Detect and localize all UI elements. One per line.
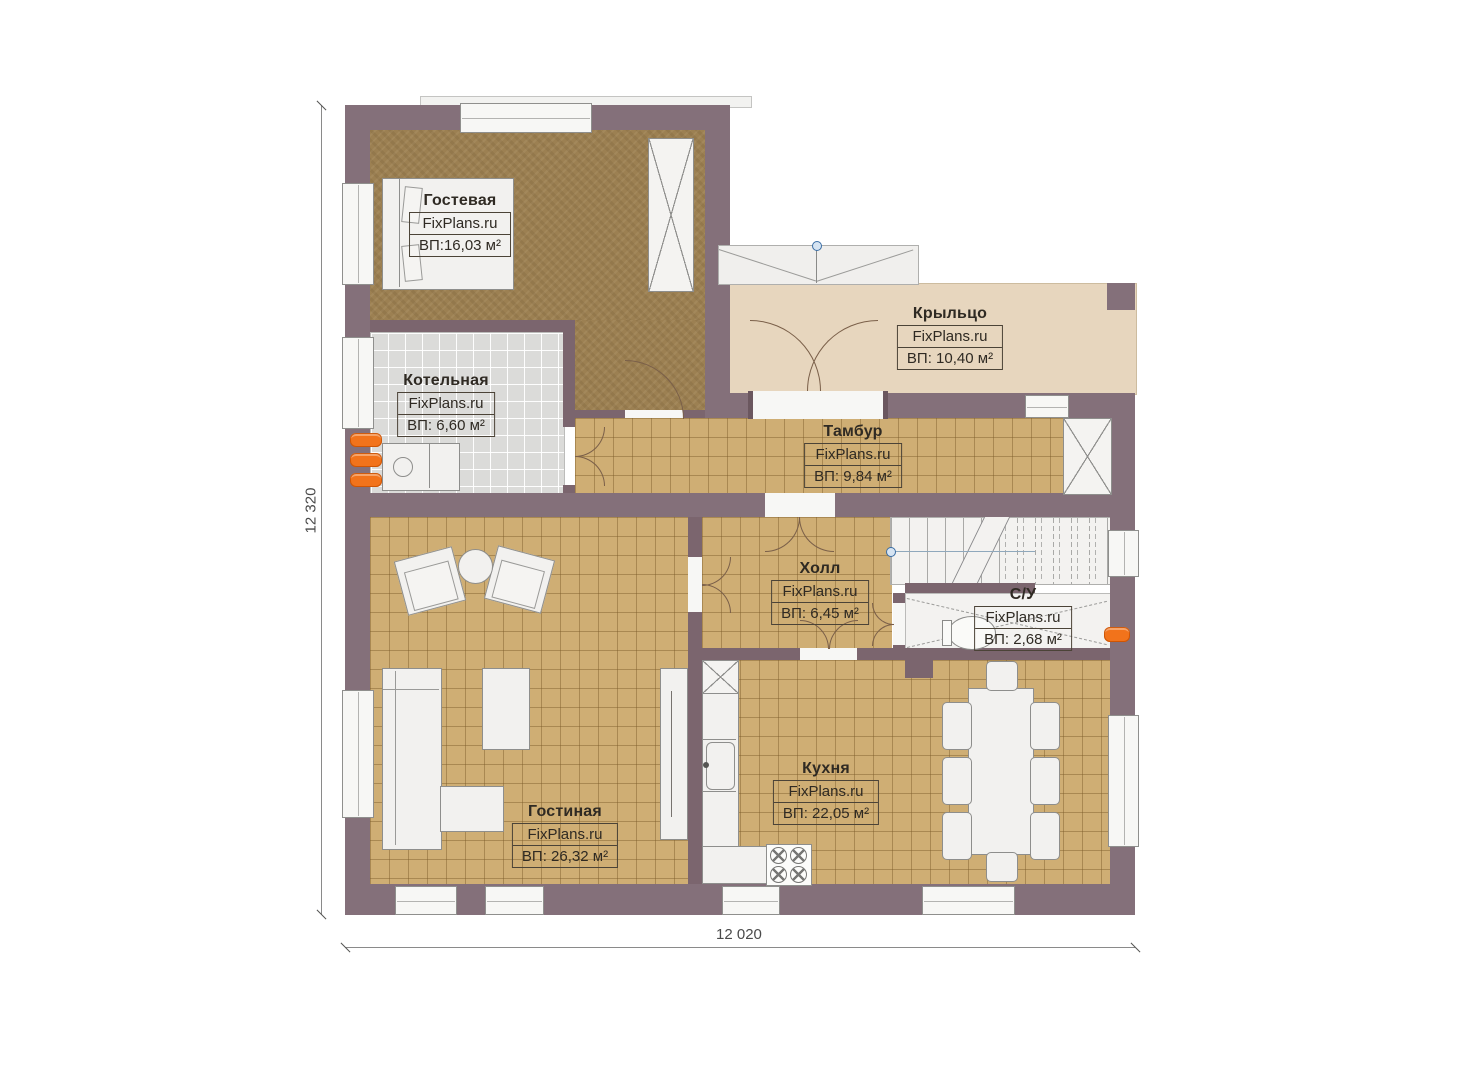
side-table: [458, 549, 493, 584]
radiator: [350, 433, 382, 447]
entry-door-opening: [748, 391, 888, 419]
area-text: ВП: 22,05 м²: [774, 802, 878, 824]
coffee-table: [482, 668, 530, 750]
wall-living-kitchen: [688, 660, 702, 884]
dining-chair: [942, 702, 972, 750]
area-text: ВП: 10,40 м²: [898, 347, 1002, 369]
stove-burner-icon: [770, 866, 787, 883]
door-opening-hall-living: [688, 557, 702, 612]
wardrobe: [648, 138, 694, 292]
wall-guest-boiler: [370, 320, 575, 332]
room-info-box: FixPlans.ru ВП: 6,45 м²: [771, 580, 869, 625]
window-bottom-kitchen-2: [922, 886, 1015, 915]
counter-divider: [703, 791, 736, 792]
room-name: Тамбур: [804, 423, 902, 441]
room-name: Кухня: [773, 760, 879, 778]
wall-hall-living-upper: [688, 517, 702, 557]
stove-burner-icon: [770, 847, 787, 864]
room-name: Котельная: [397, 372, 495, 390]
room-info-box: FixPlans.ru ВП: 26,32 м²: [512, 823, 618, 868]
dimension-line-vertical: [321, 105, 322, 915]
room-label-porch: Крыльцо FixPlans.ru ВП: 10,40 м²: [897, 305, 1003, 370]
wall-vestibule-bottom-right: [835, 493, 1110, 517]
counter-divider: [703, 739, 736, 740]
window-bottom-living-2: [485, 886, 544, 915]
dining-chair: [1030, 812, 1060, 860]
wall-hall-bottom-left: [688, 648, 800, 660]
area-text: ВП:16,03 м²: [410, 234, 510, 256]
wall-kitchen-pillar: [905, 660, 933, 678]
dining-chair: [942, 812, 972, 860]
sofa-chaise: [440, 786, 504, 832]
staircase-upper-dashed-treads: [1005, 518, 1105, 582]
window-bottom-kitchen-1: [722, 886, 780, 915]
wall-bathroom-left-upper: [893, 593, 905, 603]
room-name: Крыльцо: [897, 305, 1003, 323]
brand-text: FixPlans.ru: [398, 393, 494, 414]
door-opening-vestibule-hall: [765, 493, 835, 517]
brand-text: FixPlans.ru: [410, 213, 510, 234]
wall-guest-corridor-threshold-left: [575, 410, 625, 418]
area-text: ВП: 2,68 м²: [975, 628, 1071, 650]
window-left-living: [342, 690, 374, 818]
window-top: [460, 103, 592, 133]
vestibule-closet: [1063, 418, 1112, 495]
room-name: Холл: [771, 560, 869, 578]
window-right-kitchen: [1108, 715, 1139, 847]
brand-text: FixPlans.ru: [513, 824, 617, 845]
room-label-vestibule: Тамбур FixPlans.ru ВП: 9,84 м²: [804, 423, 902, 488]
area-text: ВП: 6,45 м²: [772, 602, 868, 624]
dimension-label-bottom: 12 020: [716, 926, 762, 943]
sofa-armrest-line: [383, 689, 439, 690]
faucet-dot: [703, 762, 709, 768]
dining-chair: [942, 757, 972, 805]
brand-text: FixPlans.ru: [772, 581, 868, 602]
stair-direction-line: [892, 551, 1035, 552]
area-text: ВП: 26,32 м²: [513, 845, 617, 867]
sofa: [382, 668, 442, 850]
bed-headboard-line: [399, 179, 400, 287]
tv-stand: [660, 668, 688, 840]
boiler-counter-divider: [429, 444, 430, 488]
wall-vestibule-bottom-left: [345, 493, 765, 517]
wall-guest-corridor-threshold-right: [683, 410, 705, 418]
area-text: ВП: 6,60 м²: [398, 414, 494, 436]
door-opening-hall-bathroom: [893, 603, 905, 645]
toilet-tank: [942, 620, 952, 646]
dining-table: [968, 688, 1034, 855]
window-left-boiler: [342, 337, 374, 429]
room-label-living: Гостиная FixPlans.ru ВП: 26,32 м²: [512, 803, 618, 868]
armchair-seat: [404, 561, 459, 612]
room-info-box: FixPlans.ru ВП: 10,40 м²: [897, 325, 1003, 370]
room-label-boiler: Котельная FixPlans.ru ВП: 6,60 м²: [397, 372, 495, 437]
radiator: [1104, 627, 1130, 642]
room-name: С/У: [974, 586, 1072, 604]
floor-plan-canvas: Гостевая FixPlans.ru ВП:16,03 м² Котельн…: [0, 0, 1474, 1080]
brand-text: FixPlans.ru: [975, 607, 1071, 628]
radiator: [350, 453, 382, 467]
wall-boiler-right-upper: [563, 332, 575, 427]
room-info-box: FixPlans.ru ВП:16,03 м²: [409, 212, 511, 257]
stove-burner-icon: [790, 847, 807, 864]
room-info-box: FixPlans.ru ВП: 6,60 м²: [397, 392, 495, 437]
room-label-hall: Холл FixPlans.ru ВП: 6,45 м²: [771, 560, 869, 625]
dining-chair: [986, 661, 1018, 691]
dining-chair: [1030, 757, 1060, 805]
wall-hall-living-lower: [688, 612, 702, 648]
dimension-line-horizontal: [345, 947, 1135, 948]
room-label-bathroom: С/У FixPlans.ru ВП: 2,68 м²: [974, 586, 1072, 651]
dining-chair: [1030, 702, 1060, 750]
boiler-sink: [393, 457, 413, 477]
wall-boiler-right-lower: [563, 485, 575, 493]
kitchen-sink: [706, 742, 735, 790]
canopy-marker: [812, 241, 822, 251]
brand-text: FixPlans.ru: [774, 781, 878, 802]
room-info-box: FixPlans.ru ВП: 22,05 м²: [773, 780, 879, 825]
stove-burner-icon: [790, 866, 807, 883]
stove: [766, 844, 812, 886]
area-text: ВП: 9,84 м²: [805, 465, 901, 487]
room-info-box: FixPlans.ru ВП: 9,84 м²: [804, 443, 902, 488]
radiator: [350, 473, 382, 487]
dimension-label-left: 12 320: [302, 488, 319, 534]
room-label-kitchen: Кухня FixPlans.ru ВП: 22,05 м²: [773, 760, 879, 825]
window-right-stairs: [1108, 530, 1139, 577]
window-left-guest: [342, 183, 374, 285]
room-name: Гостиная: [512, 803, 618, 821]
brand-text: FixPlans.ru: [805, 444, 901, 465]
porch-pillar: [1107, 283, 1135, 310]
dining-chair: [986, 852, 1018, 882]
door-opening-hall-kitchen: [800, 648, 857, 660]
boiler-counter: [382, 443, 460, 491]
tv-panel-line: [671, 691, 672, 817]
window-porch: [1025, 395, 1069, 418]
stair-start-marker: [886, 547, 896, 557]
wall-bathroom-left-lower: [893, 645, 905, 660]
upper-cabinet-cross-icon: [702, 660, 739, 694]
armchair-seat: [491, 560, 545, 609]
room-name: Гостевая: [409, 192, 511, 210]
room-info-box: FixPlans.ru ВП: 2,68 м²: [974, 606, 1072, 651]
room-label-guest: Гостевая FixPlans.ru ВП:16,03 м²: [409, 192, 511, 257]
sofa-back-line: [395, 671, 396, 845]
brand-text: FixPlans.ru: [898, 326, 1002, 347]
window-bottom-living-1: [395, 886, 457, 915]
